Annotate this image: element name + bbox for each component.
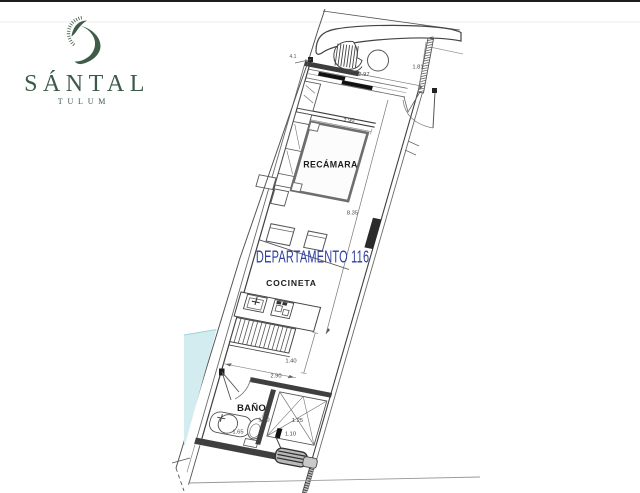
svg-text:TULUM: TULUM [58,97,110,106]
svg-text:4.1: 4.1 [290,54,297,60]
svg-text:2.97: 2.97 [358,72,369,78]
svg-text:DEPARTAMENTO 116: DEPARTAMENTO 116 [256,248,369,267]
svg-text:8.35: 8.35 [347,211,358,217]
svg-text:SÁNTAL: SÁNTAL [24,71,150,97]
svg-text:1.40: 1.40 [285,359,296,365]
svg-text:1.60: 1.60 [258,418,269,424]
svg-text:2.90: 2.90 [343,118,354,124]
svg-text:2.90: 2.90 [270,374,281,380]
svg-text:1.10: 1.10 [285,432,296,438]
svg-text:BAÑO: BAÑO [237,403,266,414]
svg-text:RECÁMARA: RECÁMARA [303,160,358,170]
svg-text:1.25: 1.25 [292,418,303,424]
svg-text:1.65: 1.65 [232,430,243,436]
svg-text:1.81: 1.81 [412,65,423,71]
svg-text:COCINETA: COCINETA [266,278,317,288]
